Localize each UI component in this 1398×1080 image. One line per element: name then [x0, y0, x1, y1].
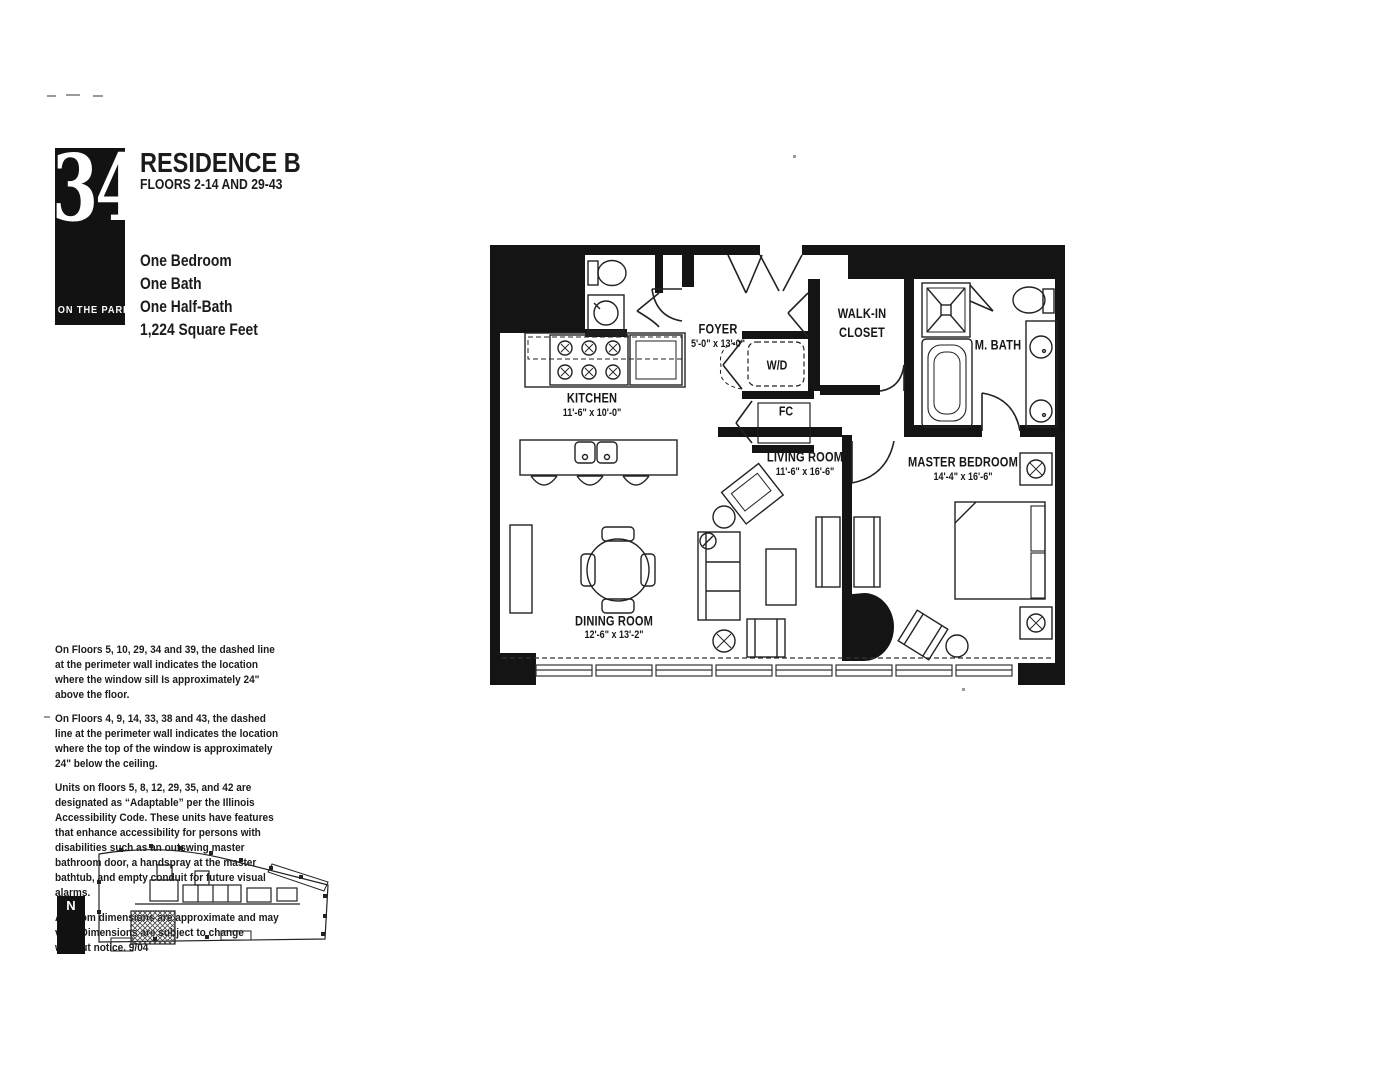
north-label: N — [57, 898, 85, 913]
armchair-2 — [747, 619, 785, 657]
room-label-living: LIVING ROOM — [759, 450, 852, 465]
note-window-sill: On Floors 5, 10, 29, 34 and 39, the dash… — [55, 643, 280, 703]
burners — [558, 341, 620, 379]
room-label-walkin: WALK-IN CLOSET — [816, 304, 908, 342]
north-indicator: N — [57, 896, 85, 954]
fact-halfbath: One Half-Bath — [140, 296, 280, 319]
toilet — [1013, 287, 1054, 313]
room-label-master: MASTER BEDROOM — [896, 455, 1030, 470]
fact-area: 1,224 Square Feet — [140, 319, 280, 342]
tv-console — [816, 517, 840, 587]
room-dims-foyer: 5'-0" x 13'-0" — [685, 338, 751, 350]
bed — [955, 502, 1045, 599]
floorplan-sheet: 340 ON THE PARK RESIDENCE B FLOORS 2-14 … — [0, 0, 1398, 1080]
bath-fixtures — [922, 283, 1057, 427]
page-subtitle: FLOORS 2-14 AND 29-43 — [140, 177, 309, 193]
room-dims-kitchen: 11'-6" x 10'-0" — [556, 407, 627, 419]
room-label-wd: W/D — [764, 358, 789, 373]
dining-table — [587, 539, 649, 601]
coffee-table — [766, 549, 796, 605]
round-table — [946, 635, 968, 657]
scan-artifact — [962, 688, 965, 691]
sideboard — [510, 525, 532, 613]
bathtub — [922, 339, 972, 427]
toilet-bowl — [598, 261, 626, 286]
room-label-fc: FC — [777, 404, 794, 419]
dining-furniture — [510, 525, 655, 613]
scan-artifact — [93, 95, 103, 97]
dresser — [854, 517, 880, 587]
side-table — [713, 506, 735, 528]
bar-stools — [531, 476, 649, 485]
logo-number: 340 — [55, 148, 125, 242]
scan-artifact — [47, 95, 56, 97]
room-label-mbath: M. BATH — [970, 338, 1027, 353]
room-label-foyer: FOYER — [694, 322, 742, 337]
armchair — [898, 610, 948, 660]
scan-artifact — [66, 94, 80, 96]
page-title: RESIDENCE B — [140, 147, 331, 179]
logo-tagline: ON THE PARK — [58, 305, 122, 316]
chair — [641, 554, 655, 586]
toilet-tank — [588, 261, 598, 285]
keyplan-svg — [95, 838, 335, 970]
nightstand — [1020, 607, 1052, 639]
room-dims-living: 11'-6" x 16'-6" — [769, 466, 840, 478]
room-dims-master: 14'-4" x 16'-6" — [927, 471, 999, 483]
vanity — [1026, 321, 1057, 427]
fact-baths: One Bath — [140, 273, 280, 296]
island — [520, 440, 677, 475]
scan-artifact — [44, 716, 50, 718]
chair — [581, 554, 595, 586]
building-keyplan — [95, 838, 335, 970]
unit-facts: One Bedroom One Bath One Half-Bath 1,224… — [140, 250, 280, 342]
room-label-kitchen: KITCHEN — [561, 391, 622, 406]
window-wall — [502, 658, 1052, 676]
fact-bedrooms: One Bedroom — [140, 250, 280, 273]
living-furniture — [698, 463, 840, 657]
sofa — [698, 532, 740, 620]
sink-basin — [594, 301, 618, 325]
floorplan-drawing: KITCHEN 11'-6" x 10'-0" FOYER 5'-0" x 13… — [490, 245, 1065, 685]
floor-lamp — [713, 630, 735, 652]
shower — [922, 283, 970, 337]
note-window-top: On Floors 4, 9, 14, 33, 38 and 43, the d… — [55, 712, 280, 772]
powder-room — [588, 261, 626, 332]
scan-artifact — [793, 155, 796, 158]
building-logo: 340 ON THE PARK — [55, 148, 125, 325]
refrigerator — [630, 335, 682, 385]
room-label-dining: DINING ROOM — [566, 614, 661, 629]
room-dims-dining: 12'-6" x 13'-2" — [578, 629, 650, 641]
